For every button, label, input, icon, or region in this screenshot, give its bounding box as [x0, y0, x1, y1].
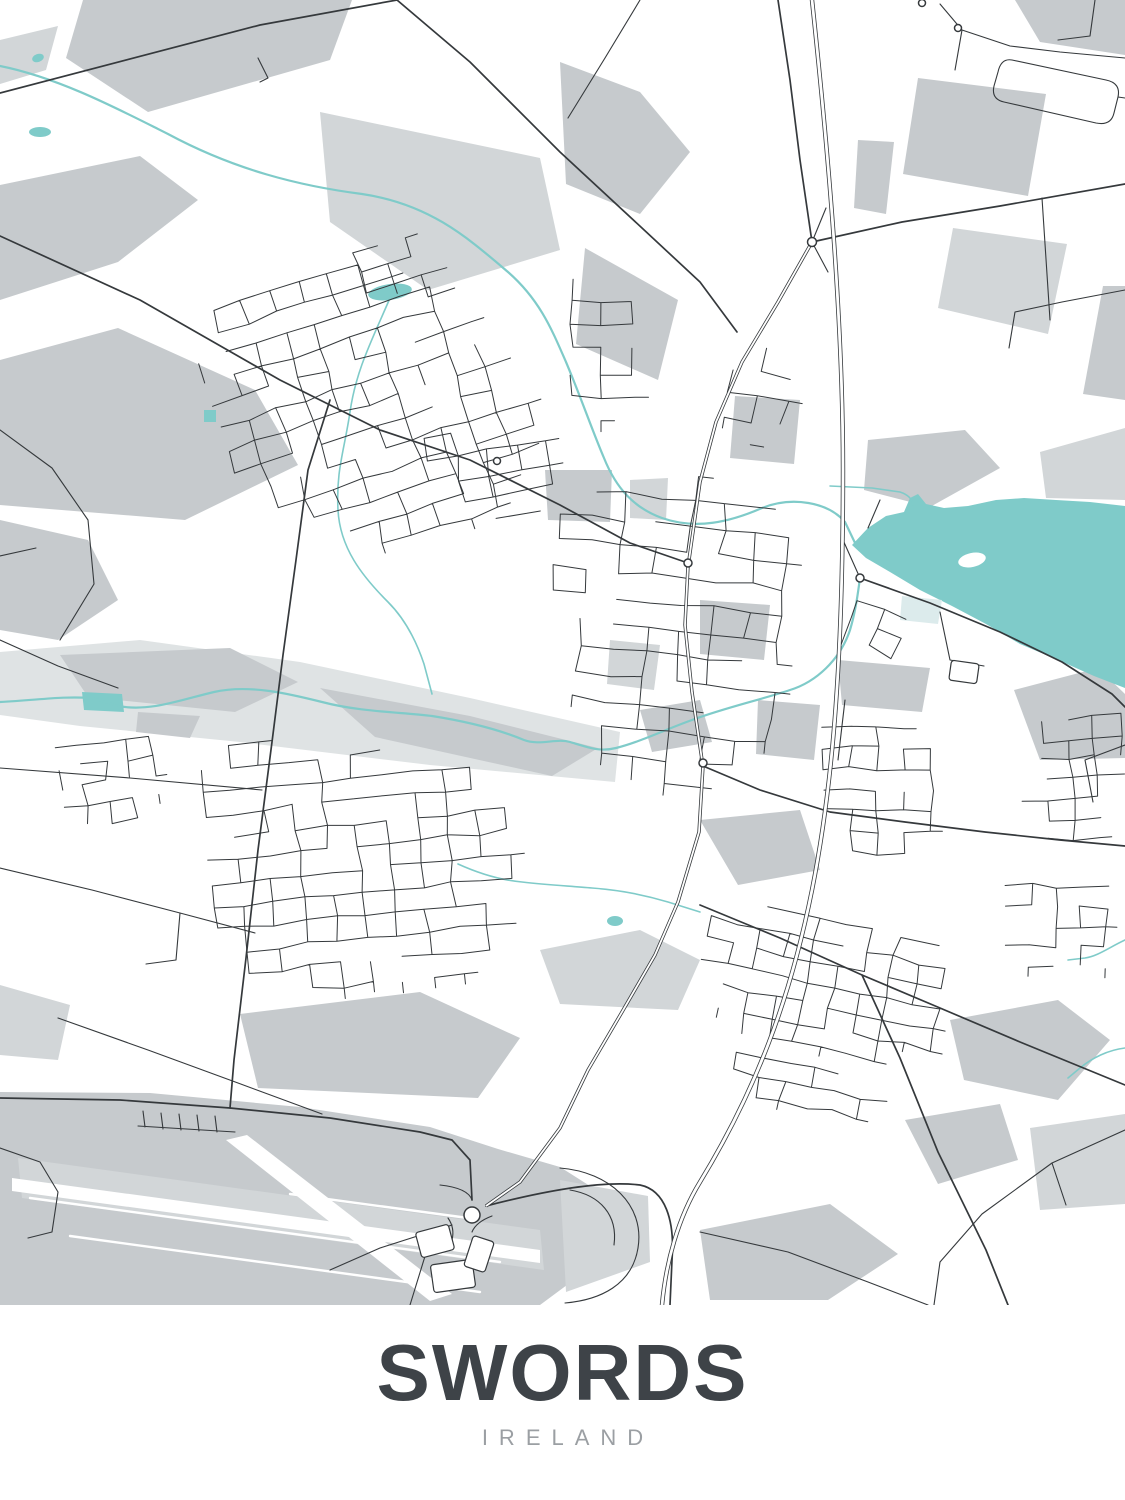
field-polygon: [700, 810, 820, 885]
map-canvas: [0, 0, 1125, 1305]
field-polygon: [240, 992, 520, 1098]
field-polygon: [320, 112, 560, 290]
field-polygon: [756, 700, 820, 760]
roundabout: [955, 25, 962, 32]
roundabout: [464, 1207, 480, 1223]
field-polygon: [838, 660, 930, 712]
street-cluster: [1005, 883, 1117, 977]
field-polygon: [854, 140, 894, 214]
field-polygon: [730, 396, 800, 464]
minor-road: [1118, 97, 1125, 98]
valley-woodland: [136, 712, 200, 738]
poster-subtitle: IRELAND: [0, 1427, 1125, 1449]
minor-road: [0, 768, 262, 790]
field-polygon: [0, 985, 70, 1060]
street-cluster: [734, 1052, 887, 1121]
roundabout: [494, 458, 501, 465]
roundabout: [684, 559, 692, 567]
field-polygon: [0, 26, 58, 84]
field-polygon: [576, 248, 678, 380]
main-road: [778, 0, 812, 242]
northwest-pond: [29, 127, 51, 137]
roundabout: [856, 574, 864, 582]
poster-title: SWORDS: [0, 1333, 1125, 1413]
minor-road: [838, 700, 845, 760]
field-polygon: [0, 520, 118, 640]
roundabout: [808, 238, 817, 247]
river-path: [338, 298, 432, 694]
river-path: [1068, 940, 1125, 960]
map-area: [0, 0, 1125, 1305]
airport-east-apron: [560, 1180, 650, 1292]
small-pond: [204, 410, 216, 422]
field-polygon: [1030, 1114, 1125, 1210]
field-polygon: [560, 62, 690, 214]
river-path: [458, 864, 700, 912]
field-polygon: [1040, 428, 1125, 500]
south-pond: [607, 916, 623, 926]
field-polygon: [864, 430, 1000, 507]
field-polygon: [607, 640, 660, 690]
main-road: [230, 400, 330, 1108]
field-polygon: [1083, 286, 1125, 400]
field-polygon: [700, 600, 770, 660]
field-polygon: [0, 156, 198, 300]
field-polygon: [1015, 0, 1125, 55]
minor-road: [955, 30, 962, 70]
estuary-water: [852, 494, 1125, 688]
street-cluster: [701, 907, 945, 1064]
field-polygon: [540, 930, 700, 1010]
field-polygon: [0, 328, 298, 520]
roundabout: [699, 759, 707, 767]
title-block: SWORDS IRELAND: [0, 1305, 1125, 1500]
map-poster: SWORDS IRELAND: [0, 0, 1125, 1500]
minor-road: [940, 612, 984, 666]
street-cluster: [201, 741, 524, 999]
minor-road: [146, 913, 180, 964]
building-outline: [949, 660, 980, 684]
roundabout: [919, 0, 926, 7]
field-polygon: [950, 1000, 1110, 1100]
field-polygon: [903, 78, 1046, 196]
field-polygon: [905, 1104, 1018, 1184]
field-polygon: [700, 1204, 898, 1300]
minor-road: [0, 868, 255, 933]
